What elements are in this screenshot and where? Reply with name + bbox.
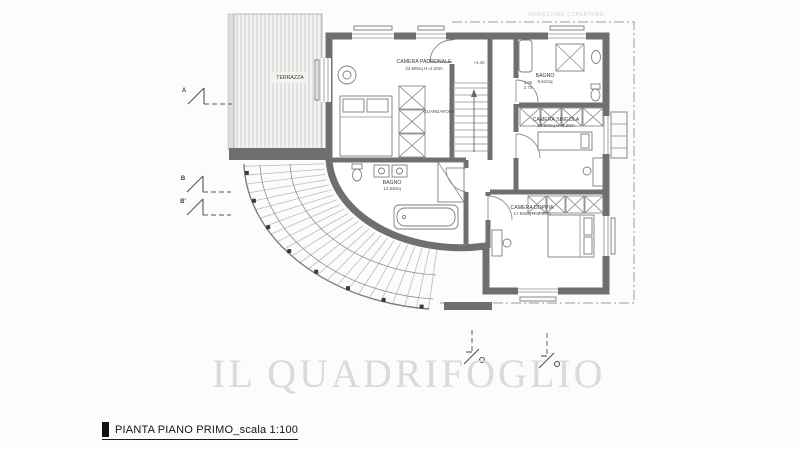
section-marker-b: B (181, 176, 231, 192)
svg-text:B': B' (180, 199, 186, 205)
master-bedroom-label: CAMERA PADRONALE (397, 59, 453, 65)
floor-plan-sheet: PROIEZIONE COPERTURA TERRAZZA (0, 0, 800, 449)
door-dimension-height: 2.70 (524, 85, 533, 90)
svg-text:B: B (181, 176, 186, 182)
bath-south-area: 12.63mq (383, 186, 401, 191)
terrace-wall (229, 148, 336, 160)
section-markers-left: A B B' (180, 88, 232, 215)
single-bed (538, 132, 592, 150)
single-bedroom-area: 12.90mq H=2.20m (537, 123, 574, 128)
double-bed-2 (548, 215, 594, 257)
bath-north-area: 9.61mq (537, 79, 553, 84)
master-bedroom-area: 24.68mq H=2.20m (405, 66, 442, 71)
terrace-deck: TERRAZZA (228, 14, 336, 160)
double-bed (340, 96, 392, 156)
section-marker-a: A (182, 88, 232, 104)
title-block: PIANTA PIANO PRIMO_scala 1:100 (102, 422, 298, 440)
drawing-caption: PIANTA PIANO PRIMO_scala 1:100 (115, 424, 298, 436)
title-block-bar-icon (102, 422, 109, 437)
section-marker-b-prime: B' (180, 199, 231, 215)
level-mark: +4.40 (473, 60, 485, 65)
double-bedroom-area: 17.93mq H=2.20m (513, 211, 550, 216)
terrazza-label: TERRAZZA (276, 75, 304, 81)
roof-projection-note: PROIEZIONE COPERTURA (528, 12, 604, 18)
wardrobe-label: GUARDAROBA (423, 109, 454, 114)
watermark: IL QUADRIFOGLIO (212, 350, 592, 397)
svg-text:A: A (182, 88, 187, 94)
